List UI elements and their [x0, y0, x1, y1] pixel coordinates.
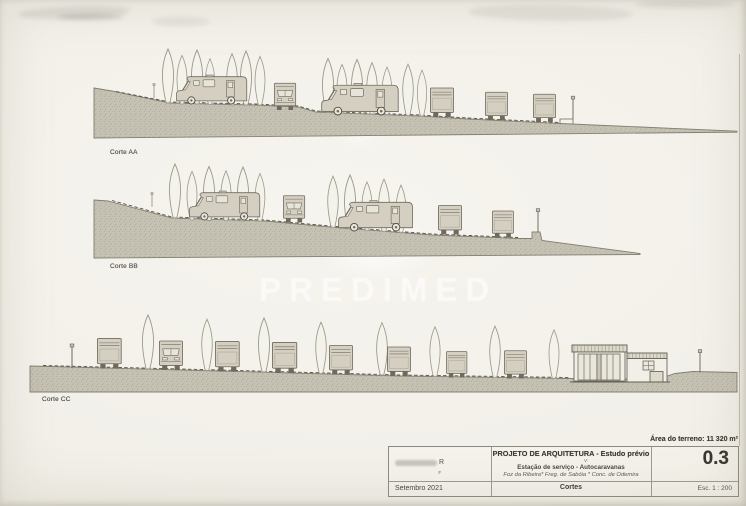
cypress-tree — [316, 322, 327, 373]
sheet-edge-line — [739, 54, 740, 446]
caravan-box — [430, 88, 453, 117]
scanned-architecture-sheet: Corte AA Corte BB — [0, 0, 746, 506]
curb-edge — [560, 119, 573, 124]
project-title: PROJETO DE ARQUITETURA - Estudo prévio — [479, 449, 663, 458]
cypress-tree — [430, 327, 440, 377]
cypress-tree — [403, 64, 414, 115]
motorhome-side — [190, 191, 260, 220]
site-area-note: Área do terreno: 11 320 m² — [650, 436, 738, 443]
lamp-post — [698, 350, 701, 373]
caravan-box — [504, 351, 526, 379]
scan-smudge — [58, 14, 124, 20]
cypress-tree — [169, 164, 180, 218]
lamp-post — [70, 344, 74, 368]
corte-aa-label: Corte AA — [110, 149, 138, 156]
caravan-box — [438, 206, 461, 235]
scan-smudge — [152, 17, 210, 26]
project-date: Setembro 2021 — [395, 485, 443, 492]
corte-cc-label: Corte CC — [42, 396, 71, 403]
cypress-tree — [202, 319, 213, 370]
corte-cc-drawing — [25, 305, 740, 400]
motorhome-side — [177, 75, 247, 104]
van-front — [159, 341, 182, 370]
title-block-number-cell: 0.3 Esc. 1 : 200 — [651, 447, 738, 496]
caravan-box — [272, 342, 296, 373]
service-building — [570, 345, 670, 382]
cypress-tree — [328, 176, 339, 227]
lamp-post — [536, 209, 539, 232]
van-front — [283, 196, 304, 223]
cypress-tree — [549, 330, 559, 379]
corte-bb-drawing — [88, 160, 648, 270]
corte-aa-drawing — [88, 40, 743, 158]
caravan-box — [329, 346, 352, 375]
scan-smudge — [635, 0, 735, 8]
lamp-post — [153, 84, 155, 98]
motorhome-side — [339, 200, 413, 231]
predimed-watermark: PREDIMED — [259, 271, 497, 309]
caravan-box — [215, 342, 239, 372]
title-block-author-cell: R F Setembro 2021 — [389, 447, 491, 496]
van-front — [274, 83, 295, 110]
corte-bb-label: Corte BB — [110, 263, 138, 270]
motorhome-side — [322, 83, 399, 115]
title-block: R F Setembro 2021 PROJETO DE ARQUITETURA… — [388, 446, 739, 497]
cypress-tree — [255, 56, 265, 105]
lamp-post — [151, 193, 153, 207]
project-subject: Estação de serviço - Autocaravanas — [491, 464, 651, 471]
sheet-number: 0.3 — [703, 448, 729, 470]
caravan-box — [533, 94, 555, 122]
caravan-box — [485, 92, 507, 120]
project-location: Foz da Ribeira* Freg. de Sabóia * Conc. … — [491, 472, 651, 478]
cypress-tree — [258, 318, 269, 372]
scan-smudge — [18, 4, 130, 21]
author-initial: R — [439, 459, 444, 466]
cypress-tree — [142, 315, 153, 369]
lamp-post — [571, 96, 574, 119]
cypress-tree — [490, 326, 501, 377]
caravan-box — [97, 339, 121, 369]
cypress-tree — [377, 323, 388, 375]
cypress-tree — [417, 70, 426, 116]
title-block-project-cell: PROJETO DE ARQUITETURA - Estudo prévio V… — [491, 447, 651, 496]
caravan-box — [492, 211, 513, 237]
scan-smudge — [468, 4, 633, 23]
caravan-box — [446, 352, 467, 378]
drawing-title: Cortes — [491, 484, 651, 491]
drawing-scale: Esc. 1 : 200 — [698, 485, 732, 492]
caravan-box — [387, 347, 410, 376]
redacted-author-name — [395, 460, 437, 466]
author-subinitial: F — [438, 471, 441, 476]
cypress-tree — [162, 49, 173, 103]
